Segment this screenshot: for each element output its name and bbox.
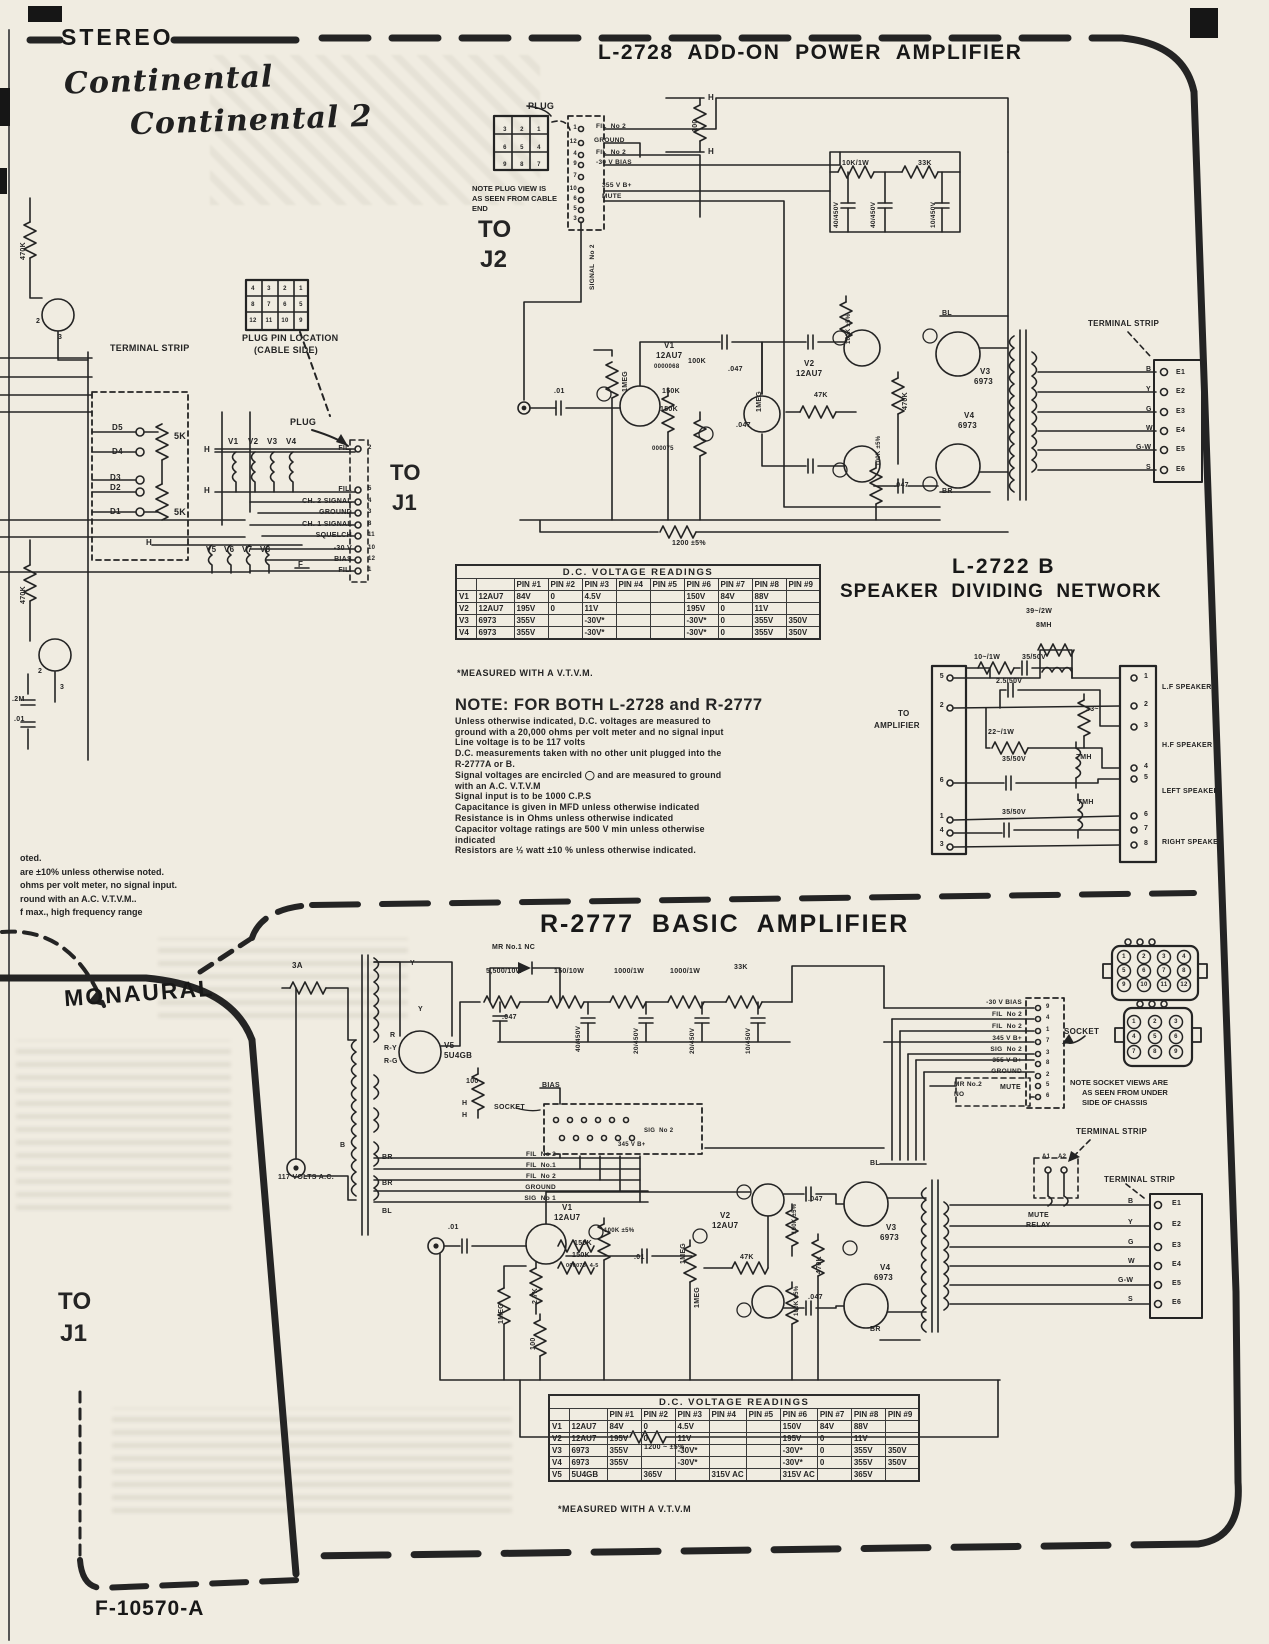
table-cell: 355V: [851, 1445, 885, 1457]
schematic-label: 6973: [880, 1234, 899, 1242]
schematic-label: FIL No 2: [992, 1024, 1022, 1031]
schematic-label: V4: [964, 412, 974, 420]
to-j1-upper-label: J1: [392, 492, 417, 514]
schematic-label: V3: [980, 368, 990, 376]
schematic-label: SQUELCH: [316, 532, 352, 539]
schematic-label: 100K ±5%: [604, 1228, 634, 1234]
table-cell: [709, 1433, 746, 1445]
table-cell: [746, 1433, 780, 1445]
text-line: ground with a 20,000 ohms per volt meter…: [455, 727, 807, 738]
table-cell: -30V*: [675, 1457, 709, 1469]
schematic-label: V1: [664, 342, 674, 350]
schematic-label: 5: [1046, 1082, 1050, 1088]
table-cell: 6973: [569, 1445, 607, 1457]
schematic-label: SIG No 2: [990, 1047, 1022, 1054]
schematic-label: 5: [940, 673, 944, 680]
schematic-label: 3: [503, 127, 507, 133]
schematic-label: 9: [299, 318, 303, 324]
text-line: Resistance is in Ohms unless otherwise i…: [455, 813, 807, 824]
schematic-label: 12: [368, 556, 375, 562]
schematic-label: LEFT SPEAKER: [1162, 788, 1219, 795]
schematic-label: CH. 1 SIGNAL: [302, 521, 352, 528]
schematic-label: 47K: [814, 392, 828, 399]
schematic-label: 8: [1046, 1060, 1050, 1066]
table-cell: 195V: [684, 603, 718, 615]
schematic-label: 470K: [816, 1256, 823, 1274]
text-line: f max., high frequency range: [20, 906, 177, 920]
table-cell: 355V: [752, 627, 786, 640]
table-cell: -30V*: [780, 1457, 817, 1469]
schematic-label: 12AU7: [712, 1222, 738, 1230]
schematic-label: V4: [286, 438, 296, 446]
table-cell: 0: [718, 615, 752, 627]
table-cell: 150V: [684, 591, 718, 603]
schematic-label: 5,500/10W: [486, 968, 523, 975]
schematic-label: R-Y: [384, 1045, 397, 1052]
table-column-header: PIN #2: [641, 1409, 675, 1421]
schematic-label: 3: [267, 286, 271, 292]
text-line: round with an A.C. V.T.V.M..: [20, 893, 177, 907]
schematic-label: MUTE: [602, 194, 622, 201]
dc-voltage-readings-table-l2728: D.C. VOLTAGE READINGSPIN #1PIN #2PIN #3P…: [455, 564, 821, 640]
table-row: V36973355V-30V*-30V*0355V350V: [549, 1445, 919, 1457]
schematic-label: 4: [1144, 763, 1148, 770]
schematic-label: BR: [870, 1326, 881, 1333]
schematic-label: 5: [299, 302, 303, 308]
schematic-label: 100: [692, 119, 699, 132]
schematic-label: 8: [1182, 968, 1186, 974]
table-cell: V4: [549, 1457, 569, 1469]
table-cell: 350V: [885, 1445, 919, 1457]
schematic-label: D2: [110, 484, 121, 492]
table-cell: 315V AC: [709, 1469, 746, 1482]
schematic-label: 10: [1140, 982, 1147, 988]
schematic-label: 2: [520, 127, 524, 133]
table-cell: 84V: [514, 591, 548, 603]
table-cell: [616, 591, 650, 603]
schematic-label: R: [390, 1032, 395, 1039]
schematic-label: 0000068: [654, 364, 679, 370]
schematic-label: 7: [267, 302, 271, 308]
table-cell: [786, 603, 820, 615]
table-column-header: PIN #5: [650, 579, 684, 591]
schematic-label: 8: [1144, 840, 1148, 847]
table-cell: 12AU7: [476, 603, 514, 615]
table-cell: [607, 1469, 641, 1482]
table-column-header: PIN #6: [684, 579, 718, 591]
schematic-label: F: [298, 561, 303, 569]
schematic-label: 7: [1132, 1049, 1136, 1055]
schematic-label: SIG No 2: [644, 1128, 673, 1134]
schematic-label: 470K: [20, 242, 27, 260]
table-cell: 0: [641, 1421, 675, 1433]
schematic-label: G: [1146, 406, 1152, 413]
schematic-label: 100K: [688, 358, 706, 365]
schematic-label: E5: [1176, 446, 1185, 453]
schematic-label: Y: [1128, 1219, 1133, 1226]
schematic-label: 1: [940, 813, 944, 820]
table-row: V46973355V-30V*-30V*0355V350V: [549, 1457, 919, 1469]
schematic-label: D3: [110, 474, 121, 482]
text-line: Unless otherwise indicated, D.C. voltage…: [455, 716, 807, 727]
schematic-label: 3: [368, 509, 372, 515]
schematic-label: W: [1146, 425, 1153, 432]
schematic-label: L.F SPEAKER: [1162, 684, 1212, 691]
table-cell: -30V*: [684, 615, 718, 627]
schematic-label: 6973: [874, 1274, 893, 1282]
schematic-label: 150/10W: [554, 968, 584, 975]
schematic-label: 7MH: [1076, 754, 1092, 761]
schematic-label: 20/450V: [634, 1028, 641, 1054]
table-cell: 355V: [607, 1457, 641, 1469]
table-row: V212AU7195V011V195V011V: [549, 1433, 919, 1445]
table-cell: 11V: [675, 1433, 709, 1445]
schematic-label: 12AU7: [796, 370, 822, 378]
table-cell: 195V: [514, 603, 548, 615]
text-line: with an A.C. V.T.V.M: [455, 781, 807, 792]
schematic-label: R-G: [384, 1058, 398, 1065]
schematic-label: 5K: [174, 508, 186, 517]
schematic-label: GROUND: [525, 1185, 556, 1192]
socket-view-note: NOTE SOCKET VIEWS AREAS SEEN FROM UNDERS…: [1070, 1078, 1168, 1108]
schematic-label: 5: [368, 486, 372, 492]
plug-view-note: NOTE PLUG VIEW ISAS SEEN FROM CABLEEND: [472, 184, 557, 214]
schematic-label: 40/450V: [576, 1026, 583, 1052]
table-cell: 11V: [582, 603, 616, 615]
table-cell: [885, 1469, 919, 1482]
schematic-label: PLUG: [290, 418, 316, 427]
schematic-label: FIL No 2: [992, 1012, 1022, 1019]
socket-label: SOCKET: [1064, 1028, 1099, 1036]
schematic-label: E2: [1176, 388, 1185, 395]
table-title: D.C. VOLTAGE READINGS: [456, 565, 820, 579]
table-cell: 0: [817, 1457, 851, 1469]
schematic-label: V1: [228, 438, 238, 446]
schematic-label: 12AU7: [554, 1214, 580, 1222]
table-row: V46973355V-30V*-30V*0355V350V: [456, 627, 820, 640]
table-column-header: PIN #7: [718, 579, 752, 591]
schematic-label: S: [1128, 1296, 1133, 1303]
schematic-label: 470K: [902, 392, 909, 410]
table-column-header: PIN #1: [607, 1409, 641, 1421]
schematic-label: 10: [368, 545, 375, 551]
schematic-label: 1MEG: [694, 1287, 701, 1308]
schematic-label: 1000/1W: [614, 968, 644, 975]
socket-label: SOCKET: [494, 1104, 525, 1111]
schematic-label: 100K ±5%: [794, 1286, 800, 1316]
schematic-label: E6: [1176, 466, 1185, 473]
schematic-label: 6973: [974, 378, 993, 386]
table-cell: 195V: [607, 1433, 641, 1445]
schematic-label: 20/450V: [690, 1028, 697, 1054]
text-line: Capacitor voltage ratings are 500 V min …: [455, 824, 807, 835]
schematic-label: 3: [1162, 954, 1166, 960]
table-cell: 350V: [885, 1457, 919, 1469]
table-cell: [746, 1445, 780, 1457]
schematic-label: -30 V: [334, 545, 352, 552]
table-cell: 12AU7: [476, 591, 514, 603]
schematic-label: -30 V BIAS: [596, 160, 632, 167]
schematic-label: 100K ±5%: [846, 314, 852, 344]
schematic-label: FIL No 2: [596, 124, 626, 131]
handwritten-model-name: Continental: [64, 62, 274, 99]
table-cell: 84V: [817, 1421, 851, 1433]
schematic-label: SIG No 1: [524, 1196, 556, 1203]
schematic-label: 1MEG: [622, 371, 629, 392]
schematic-label: 5: [573, 206, 577, 212]
schematic-label: 12: [570, 139, 577, 145]
schematic-label: FIL.: [338, 486, 352, 493]
table-cell: [709, 1445, 746, 1457]
schematic-label: V2: [720, 1212, 730, 1220]
schematic-label: Y: [418, 1006, 423, 1013]
table-row: V36973355V-30V*-30V*0355V350V: [456, 615, 820, 627]
schematic-label: 10: [281, 318, 288, 324]
table-cell: [548, 627, 582, 640]
schematic-label: 1: [368, 567, 372, 573]
to-j1-upper-label: TO: [390, 462, 421, 484]
general-notes-title: NOTE: FOR BOTH L-2728 and R-2777: [455, 700, 807, 711]
schematic-label: 117 VOLTS A.C.: [278, 1174, 334, 1181]
table-cell: 11V: [752, 603, 786, 615]
schematic-label: 1: [537, 127, 541, 133]
text-line: END: [472, 204, 557, 214]
schematic-label: SIGNAL No 2: [590, 244, 597, 290]
table-cell: [616, 627, 650, 640]
schematic-label: V1: [562, 1204, 572, 1212]
schematic-label: .047: [808, 1196, 823, 1203]
schematic-label: 5: [520, 145, 524, 151]
schematic-label: 10K/1W: [842, 160, 869, 167]
table-cell: -30V*: [780, 1445, 817, 1457]
table-cell: 355V: [752, 615, 786, 627]
schematic-label: .047: [808, 1294, 823, 1301]
schematic-label: MUTE: [1000, 1084, 1021, 1091]
schematic-label: 2: [283, 286, 287, 292]
table-cell: V2: [456, 603, 476, 615]
table-column-header: PIN #1: [514, 579, 548, 591]
table-cell: 4.5V: [675, 1421, 709, 1433]
table-cell: 11V: [851, 1433, 885, 1445]
general-notes-block: NOTE: FOR BOTH L-2728 and R-2777 Unless …: [455, 700, 807, 856]
schematic-label: RELAY: [1026, 1222, 1051, 1229]
table-cell: 355V: [607, 1445, 641, 1457]
table-column-header: [476, 579, 514, 591]
schematic-label: PLUG: [528, 102, 554, 111]
table-cell: 12AU7: [569, 1433, 607, 1445]
handwritten-model-name: Continental 2: [130, 102, 374, 140]
schematic-label: 1: [299, 286, 303, 292]
schematic-label: FIL No 2: [596, 150, 626, 157]
table-cell: [675, 1469, 709, 1482]
schematic-label: 1MEG: [498, 1303, 505, 1324]
text-line: AS SEEN FROM UNDER: [1070, 1088, 1168, 1098]
schematic-label: 3: [940, 841, 944, 848]
schematic-label: BR: [382, 1180, 393, 1187]
schematic-label: 8: [520, 162, 524, 168]
schematic-label: G-W: [1118, 1277, 1133, 1284]
voltage-table: D.C. VOLTAGE READINGSPIN #1PIN #2PIN #3P…: [455, 564, 821, 640]
schematic-label: CH. 2 SIGNAL: [302, 498, 352, 505]
table-column-header: PIN #3: [582, 579, 616, 591]
schematic-label: Y: [410, 960, 415, 967]
table-title: D.C. VOLTAGE READINGS: [549, 1395, 919, 1409]
table-cell: V1: [456, 591, 476, 603]
schematic-label: 1000/1W: [670, 968, 700, 975]
schematic-label: .2M: [12, 696, 25, 703]
schematic-label: 150K: [662, 388, 680, 395]
schematic-label: E1: [1176, 369, 1185, 376]
schematic-label: E2: [1172, 1221, 1181, 1228]
schematic-label: MR No.2: [954, 1082, 982, 1089]
table-cell: [746, 1421, 780, 1433]
schematic-label: FIL No 2: [526, 1174, 556, 1181]
schematic-label: S: [1146, 464, 1151, 471]
schematic-label: 5: [1153, 1034, 1157, 1040]
schematic-label: D1: [110, 508, 121, 516]
table-cell: [548, 615, 582, 627]
table-cell: [650, 615, 684, 627]
schematic-label: 1: [1122, 954, 1126, 960]
schematic-label: 8: [368, 521, 372, 527]
schematic-label: 8: [251, 302, 255, 308]
schematic-label: 47K: [740, 1254, 754, 1261]
table-cell: [817, 1469, 851, 1482]
table-column-header: PIN #3: [675, 1409, 709, 1421]
schematic-label: BIAS: [542, 1082, 560, 1089]
text-line: Resistors are ½ watt ±10 % unless otherw…: [455, 845, 807, 856]
schematic-label: 33K: [734, 964, 748, 971]
table-cell: 6973: [476, 615, 514, 627]
schematic-label: 100: [530, 1337, 537, 1350]
table-cell: 350V: [786, 627, 820, 640]
schematic-label: 9: [1122, 982, 1126, 988]
terminal-strip-label: TERMINAL STRIP: [1088, 320, 1159, 328]
schematic-label: BR: [942, 488, 953, 495]
schematic-label: E3: [1176, 408, 1185, 415]
schematic-label: RIGHT SPEAKER: [1162, 839, 1223, 846]
schematic-label: H: [462, 1112, 467, 1119]
left-edge-text-fragments: oted.are ±10% unless otherwise noted.ohm…: [20, 852, 177, 920]
table-column-header: [456, 579, 476, 591]
l2722-section-title: L-2722 B: [952, 556, 1056, 577]
schematic-label: GROUND: [594, 138, 625, 145]
schematic-label: 6: [283, 302, 287, 308]
schematic-label: 4: [1182, 954, 1186, 960]
schematic-label: TO: [898, 710, 910, 718]
text-line: oted.: [20, 852, 177, 866]
schematic-label: H: [462, 1100, 467, 1107]
table-column-header: PIN #4: [616, 579, 650, 591]
schematic-label: H: [146, 539, 152, 547]
stereo-section-label: STEREO: [61, 26, 174, 49]
schematic-label: 150K: [660, 406, 678, 413]
schematic-label: .01: [554, 388, 565, 395]
schematic-label: 6: [1046, 1093, 1050, 1099]
table-cell: [616, 603, 650, 615]
table-cell: [650, 591, 684, 603]
table-cell: 0: [548, 603, 582, 615]
to-j1-label: J1: [60, 1322, 87, 1346]
table-row: V55U4GB365V315V AC315V AC365V: [549, 1469, 919, 1482]
schematic-label: 33~: [1086, 706, 1099, 713]
table-cell: 88V: [752, 591, 786, 603]
schematic-label: 2: [1046, 1072, 1050, 1078]
table-cell: [616, 615, 650, 627]
schematic-label: 9: [1174, 1049, 1178, 1055]
schematic-label: 9: [573, 161, 577, 167]
schematic-label: 470K: [20, 586, 27, 604]
table-column-header: PIN #4: [709, 1409, 746, 1421]
schematic-label: 10: [570, 186, 577, 192]
schematic-label: H: [708, 94, 714, 102]
schematic-label: 2: [1144, 701, 1148, 708]
table-row: V112AU784V04.5V150V84V88V: [456, 591, 820, 603]
schematic-label: 6: [940, 777, 944, 784]
schematic-label: 4: [251, 286, 255, 292]
schematic-label: 35/50V: [1002, 809, 1026, 816]
text-line: Line voltage is to be 117 volts: [455, 737, 807, 748]
table-column-header: PIN #9: [885, 1409, 919, 1421]
table-cell: 150V: [780, 1421, 817, 1433]
schematic-label: B: [340, 1142, 345, 1149]
table-cell: 355V: [514, 627, 548, 640]
table-cell: 0: [548, 591, 582, 603]
schematic-label: 355 V B+: [992, 1058, 1022, 1065]
schematic-label: FIL.: [338, 445, 352, 452]
document-number: F-10570-A: [95, 1598, 204, 1619]
schematic-label: D4: [112, 448, 123, 456]
table-column-header: PIN #6: [780, 1409, 817, 1421]
schematic-label: .047: [502, 1014, 517, 1021]
table-cell: 0: [817, 1433, 851, 1445]
schematic-label: 35/50V: [1002, 756, 1026, 763]
schematic-label: AMPLIFIER: [874, 722, 920, 730]
to-j2-label: J2: [480, 248, 507, 272]
text-line: are ±10% unless otherwise noted.: [20, 866, 177, 880]
table-cell: 365V: [641, 1469, 675, 1482]
schematic-label: 3: [1046, 1050, 1050, 1056]
table-cell: 88V: [851, 1421, 885, 1433]
table-cell: V3: [549, 1445, 569, 1457]
schematic-label: 100K ±5%: [876, 436, 882, 466]
schematic-label: 2: [368, 445, 372, 451]
schematic-label: 12: [1180, 982, 1187, 988]
table-cell: 4.5V: [582, 591, 616, 603]
table-row: V112AU784V04.5V150V84V88V: [549, 1421, 919, 1433]
table-cell: [786, 591, 820, 603]
table-cell: [650, 603, 684, 615]
text-line: R-2777A or B.: [455, 759, 807, 770]
schematic-label: 3: [1144, 722, 1148, 729]
schematic-label: 3: [1174, 1019, 1178, 1025]
schematic-label: .047: [894, 482, 909, 489]
schematic-label: 3: [60, 684, 64, 691]
schematic-label: BL: [870, 1160, 880, 1167]
schematic-label: 5U4GB: [444, 1052, 472, 1060]
schematic-label: V3: [886, 1224, 896, 1232]
table-cell: V1: [549, 1421, 569, 1433]
schematic-label: 000075 4-5: [566, 1264, 599, 1270]
schematic-label: 355 V B+: [602, 183, 632, 190]
schematic-label: V2: [804, 360, 814, 368]
schematic-label: 1MEG: [680, 1243, 687, 1264]
text-line: D.C. measurements taken with no other un…: [455, 748, 807, 759]
schematic-label: 1: [573, 125, 577, 131]
terminal-strip-label: TERMINAL STRIP: [1076, 1128, 1147, 1136]
schematic-label: 33K: [918, 160, 932, 167]
schematic-label: .01: [448, 1224, 459, 1231]
